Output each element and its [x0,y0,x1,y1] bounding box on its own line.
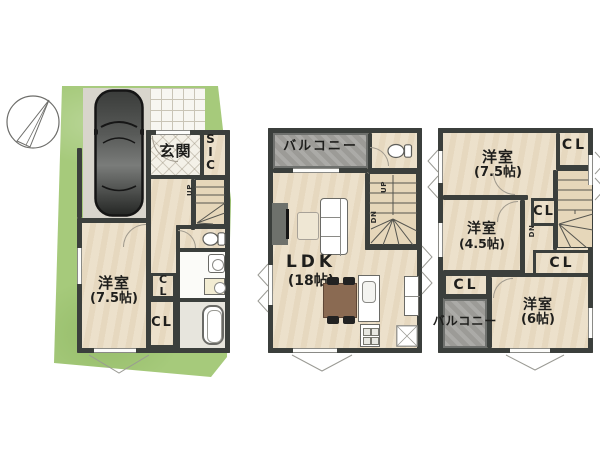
bedroom3-label: 洋室 (6帖) [488,297,588,328]
bedroom2-label: 洋室 (4.5帖) [443,221,521,251]
washbasin-icon [204,278,225,295]
bathtub-icon [202,305,224,345]
floor-plan-sheet: UP CL CL 玄関 SIC [0,0,600,450]
stairs-icon [369,173,417,245]
bedroom3-size: (6帖) [488,313,588,328]
kitchen-sink-icon [362,281,376,303]
coffee-table-icon [297,212,319,240]
closet: CL [148,299,176,348]
stove-icon [360,324,380,347]
stairs-down-label: DN [528,224,536,238]
window-mark [257,263,269,313]
wall-segment [438,128,593,133]
wall-segment [268,348,422,353]
window-mark [427,149,439,199]
bedroom-size: (7.5帖) [77,292,151,307]
window [293,168,339,173]
closet: CL [443,273,489,297]
window-mark [594,151,600,201]
chair-icon [343,277,355,285]
sofa-icon [320,198,348,255]
chair-icon [327,316,339,324]
wall-segment [443,195,528,200]
window [588,155,593,185]
closet: CL [150,273,176,299]
wall-segment [417,128,422,353]
window [94,348,136,353]
toilet-icon [387,143,413,159]
closet-label: CL [158,274,169,298]
wall-segment [365,245,422,250]
bedroom-name: 洋室 [77,275,151,292]
first-floor-plan: UP CL CL 玄関 SIC [50,80,250,392]
closet-label: CL [151,316,173,331]
stairs-icon [195,179,225,225]
closet-label: CL [549,255,574,271]
window [510,348,550,353]
wall-segment [176,225,230,229]
second-floor-plan: バルコニー UP DN [265,125,435,380]
bedroom-label: 洋室 (7.5帖) [77,275,151,307]
chair-icon [327,277,339,285]
closet-label: CL [558,137,591,153]
balcony-label: バルコニー [273,140,368,155]
stairs-up-label: UP [380,180,388,194]
entrance-label: 玄関 [151,143,200,160]
bedroom1-name: 洋室 [443,149,553,166]
cupboard-icon [404,276,419,316]
bedroom3-name: 洋室 [488,297,588,313]
closet-label: CL [533,205,555,220]
third-floor-plan: DN CL CL CL CL バルコニー 洋室 (7.5帖) 洋室 (4.5帖)… [425,123,600,380]
bedroom2-size: (4.5帖) [443,237,521,251]
eave-mark [291,354,353,374]
eave-mark [505,354,565,372]
chair-icon [343,316,355,324]
tv-icon [286,209,289,239]
bedroom2-name: 洋室 [443,221,521,237]
closet-label: CL [453,277,478,293]
stairs-up-label: UP [186,183,194,197]
washing-machine-icon [208,254,225,273]
eave-mark [88,354,150,376]
car-icon [94,89,144,217]
window [293,348,337,353]
wall-segment [77,218,151,223]
ldk-name: LDK [277,253,345,273]
closet: CL [531,198,557,226]
window [438,223,443,257]
window [588,308,593,338]
sic-label: SIC [204,133,217,173]
window [156,130,190,135]
stairs-down-label: DN [370,210,378,224]
toilet-icon [202,231,226,247]
closet: CL [533,250,591,276]
refrigerator-icon [396,325,418,347]
dining-table-icon [323,283,357,318]
entrance-approach-tiles [150,88,205,131]
garage-wall [77,148,82,218]
